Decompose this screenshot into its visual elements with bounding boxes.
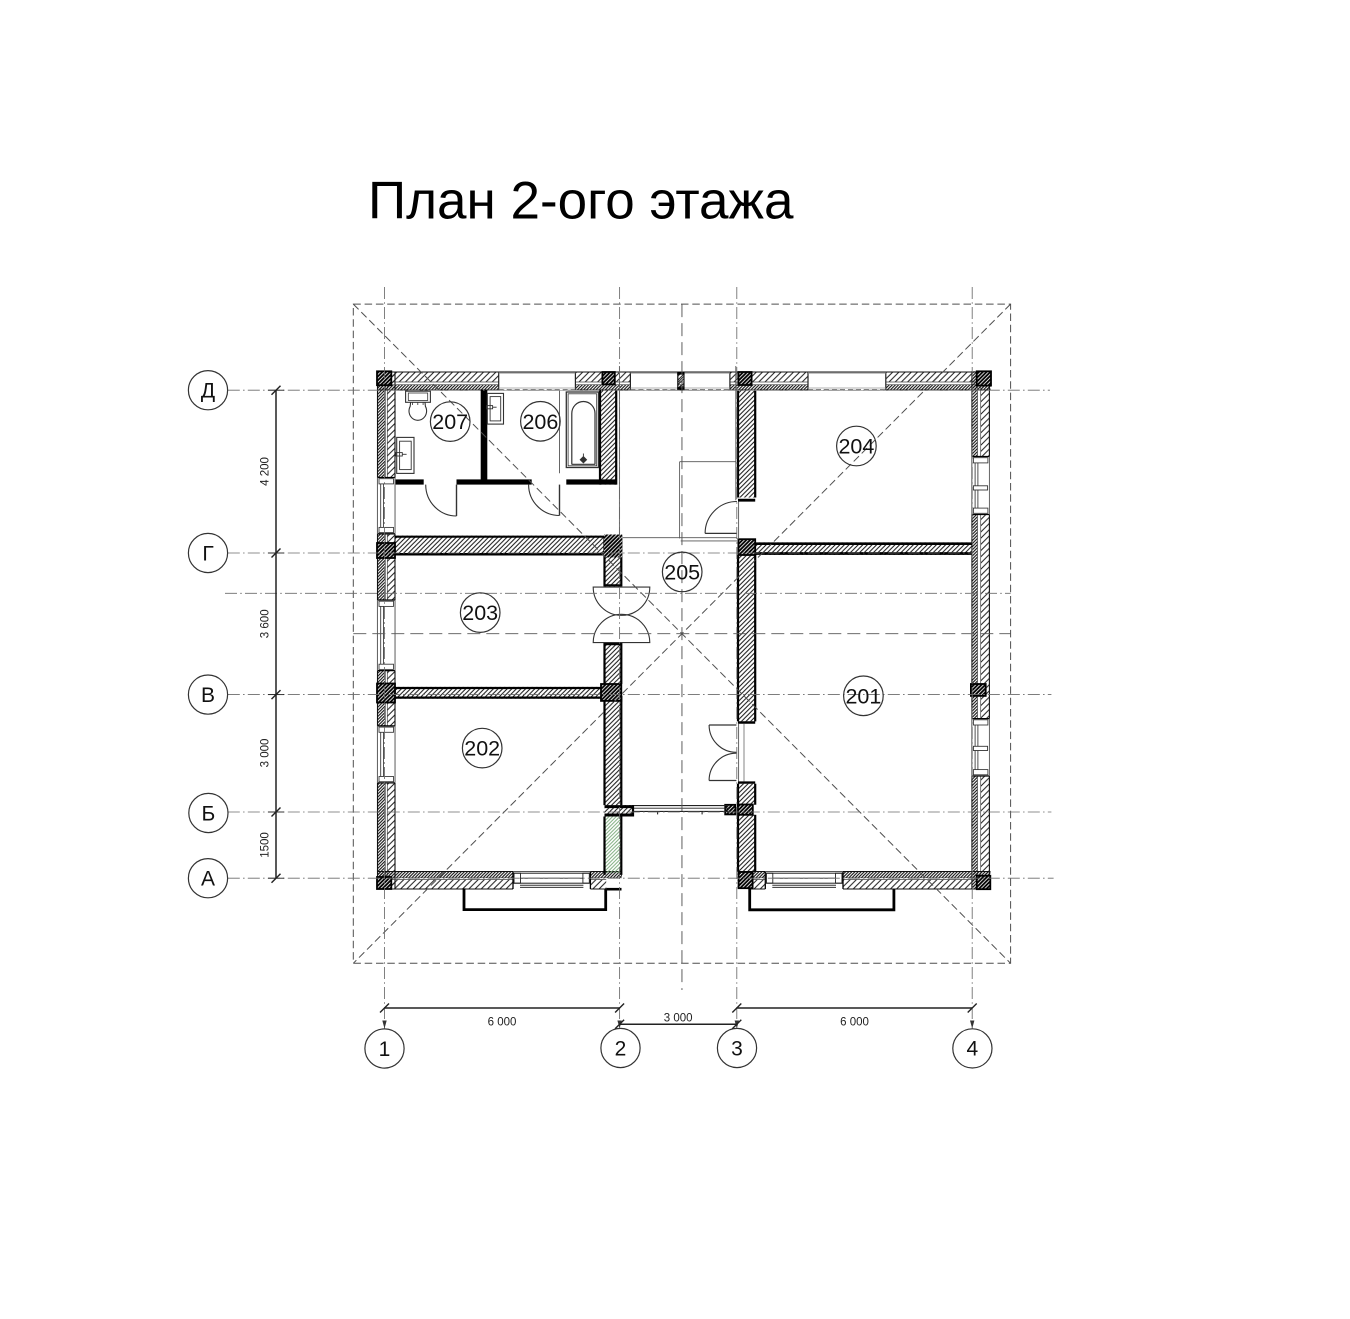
svg-text:2: 2 xyxy=(615,1037,627,1060)
svg-text:204: 204 xyxy=(838,435,874,459)
svg-text:3: 3 xyxy=(731,1037,743,1060)
svg-text:Д: Д xyxy=(201,380,215,403)
svg-text:6 000: 6 000 xyxy=(488,1017,517,1029)
svg-text:207: 207 xyxy=(432,410,468,434)
svg-text:3 600: 3 600 xyxy=(260,609,272,638)
svg-text:3 000: 3 000 xyxy=(260,739,272,768)
svg-text:4 200: 4 200 xyxy=(260,457,272,486)
svg-text:201: 201 xyxy=(845,684,881,708)
svg-text:3 000: 3 000 xyxy=(664,1013,693,1025)
svg-text:206: 206 xyxy=(522,410,558,434)
svg-text:203: 203 xyxy=(462,601,498,625)
svg-text:1500: 1500 xyxy=(260,832,272,858)
svg-text:Б: Б xyxy=(202,802,216,825)
svg-text:6 000: 6 000 xyxy=(840,1017,869,1029)
svg-text:1: 1 xyxy=(379,1038,391,1061)
svg-text:В: В xyxy=(201,684,215,707)
svg-text:4: 4 xyxy=(967,1038,979,1061)
svg-text:205: 205 xyxy=(664,560,700,584)
svg-text:План 2-ого этажа: План 2-ого этажа xyxy=(368,172,794,231)
svg-text:Г: Г xyxy=(202,542,213,565)
svg-text:202: 202 xyxy=(464,737,500,761)
svg-text:А: А xyxy=(201,868,215,891)
